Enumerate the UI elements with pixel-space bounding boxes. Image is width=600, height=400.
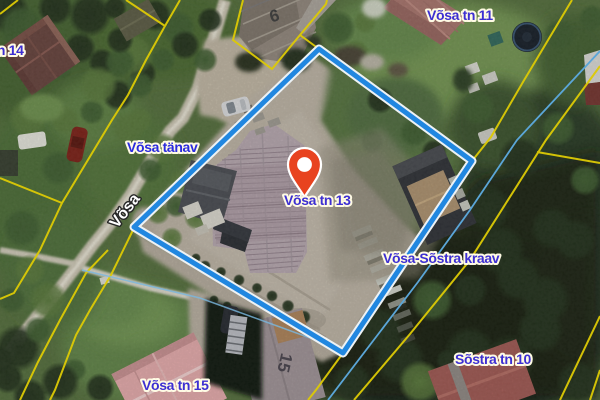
- svg-text:Sõstra tn 10: Sõstra tn 10: [455, 351, 532, 367]
- svg-text:Võsa tn 15: Võsa tn 15: [142, 377, 209, 393]
- svg-text:Võsa tn 11: Võsa tn 11: [427, 7, 493, 23]
- svg-text:Võsa tänav: Võsa tänav: [127, 139, 198, 155]
- svg-text:Võsa tn 14: Võsa tn 14: [0, 42, 24, 58]
- svg-text:Võsa tn 13: Võsa tn 13: [284, 192, 351, 208]
- svg-text:Võsa-Sõstra kraav: Võsa-Sõstra kraav: [383, 250, 500, 266]
